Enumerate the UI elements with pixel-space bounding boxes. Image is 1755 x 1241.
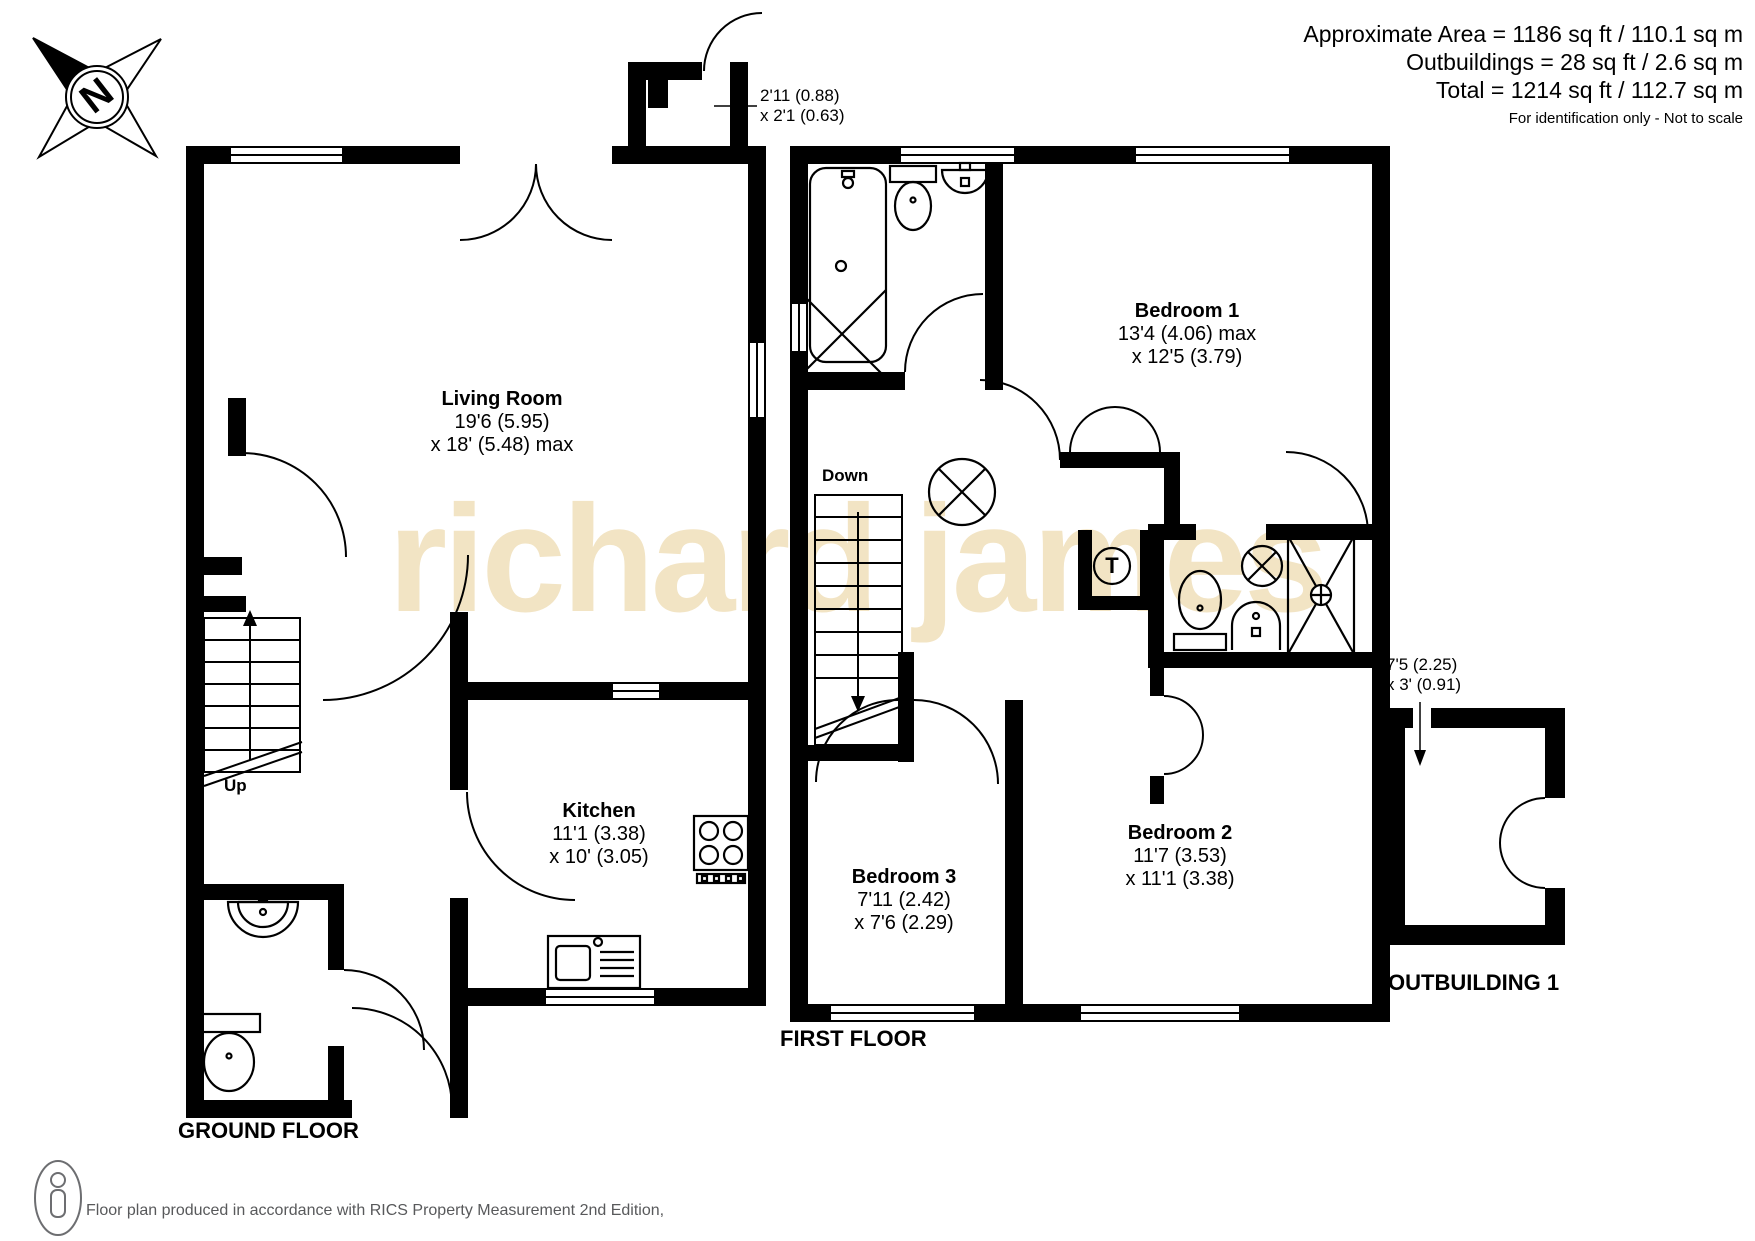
person-icon <box>35 1161 81 1235</box>
stairs-up-label: Up <box>224 776 247 796</box>
scale-note: For identification only - Not to scale <box>1303 110 1743 127</box>
ceiling-light-icon <box>1242 546 1282 586</box>
sink-icon <box>548 936 640 988</box>
outbuilding-walls <box>1385 708 1565 945</box>
shower-icon <box>1288 536 1354 654</box>
ensuite-door-arc <box>1286 452 1368 534</box>
porch-dims: 2'11 (0.88) x 2'1 (0.63) <box>760 86 845 126</box>
hob-icon <box>694 816 748 883</box>
wardrobe-door-arc-left <box>1070 407 1115 452</box>
first-floor-fixtures <box>798 163 1354 654</box>
cupboard-door-arc-top <box>1164 696 1203 735</box>
ceiling-light-icon <box>929 459 995 525</box>
tank-label: T <box>1105 553 1118 579</box>
bedroom2-door-arc <box>914 700 998 784</box>
outbuilding-dims: 7'5 (2.25) x 3' (0.91) <box>1386 655 1461 695</box>
stairs-down-label: Down <box>822 466 868 486</box>
total-area: Total = 1214 sq ft / 112.7 sq m <box>1303 76 1743 104</box>
rear-door-arc <box>352 1008 452 1108</box>
wc-door-arc <box>344 970 424 1050</box>
french-door-left-arc <box>460 164 536 240</box>
outbuilding-label: OUTBUILDING 1 <box>1388 970 1559 996</box>
ground-floor-label: GROUND FLOOR <box>178 1118 359 1144</box>
footer-disclaimer: Floor plan produced in accordance with R… <box>86 1153 817 1241</box>
bedroom1-door-arc <box>980 380 1060 460</box>
living-kitchen-door-arc <box>323 555 468 700</box>
stairs-down <box>815 495 902 745</box>
ground-floor-windows <box>230 147 765 1005</box>
outbuildings-area: Outbuildings = 28 sq ft / 2.6 sq m <box>1303 48 1743 76</box>
bedroom2-label: Bedroom 2 11'7 (3.53) x 11'1 (3.38) <box>1125 822 1234 891</box>
bathroom-door-arc <box>905 294 983 372</box>
down-arrow-icon <box>851 696 865 712</box>
footer-line1: Floor plan produced in accordance with R… <box>86 1199 817 1222</box>
basin-icon <box>1232 602 1280 650</box>
bath-icon <box>798 168 886 378</box>
bedroom1-label: Bedroom 1 13'4 (4.06) max x 12'5 (3.79) <box>1118 300 1256 369</box>
ground-floor-doors <box>242 13 762 1108</box>
area-summary: Approximate Area = 1186 sq ft / 110.1 sq… <box>1303 20 1743 127</box>
outbuilding-dim-arrow <box>1414 702 1426 766</box>
ground-floor-fixtures <box>198 816 748 1091</box>
floorplan-drawing <box>0 0 1755 1241</box>
floorplan-page: richard james <box>0 0 1755 1241</box>
living-room-label: Living Room 19'6 (5.95) x 18' (5.48) max <box>431 388 574 457</box>
ground-floor-walls <box>186 62 766 1118</box>
toilet-icon <box>1174 571 1226 650</box>
toilet-icon <box>198 1014 260 1091</box>
approximate-area: Approximate Area = 1186 sq ft / 110.1 sq… <box>1303 20 1743 48</box>
stairs-up <box>204 610 302 786</box>
french-door-right-arc <box>536 164 612 240</box>
bedroom3-label: Bedroom 3 7'11 (2.42) x 7'6 (2.29) <box>852 866 956 935</box>
first-floor-label: FIRST FLOOR <box>780 1026 927 1052</box>
outbuilding-doors <box>1500 798 1545 888</box>
basin-icon <box>942 163 988 193</box>
wardrobe-door-arc-right <box>1115 407 1160 452</box>
basin-icon <box>228 894 298 937</box>
toilet-icon <box>890 166 936 230</box>
living-room-door-arc <box>242 453 346 557</box>
kitchen-label: Kitchen 11'1 (3.38) x 10' (3.05) <box>549 800 648 869</box>
cupboard-door-arc-bottom <box>1164 735 1203 774</box>
